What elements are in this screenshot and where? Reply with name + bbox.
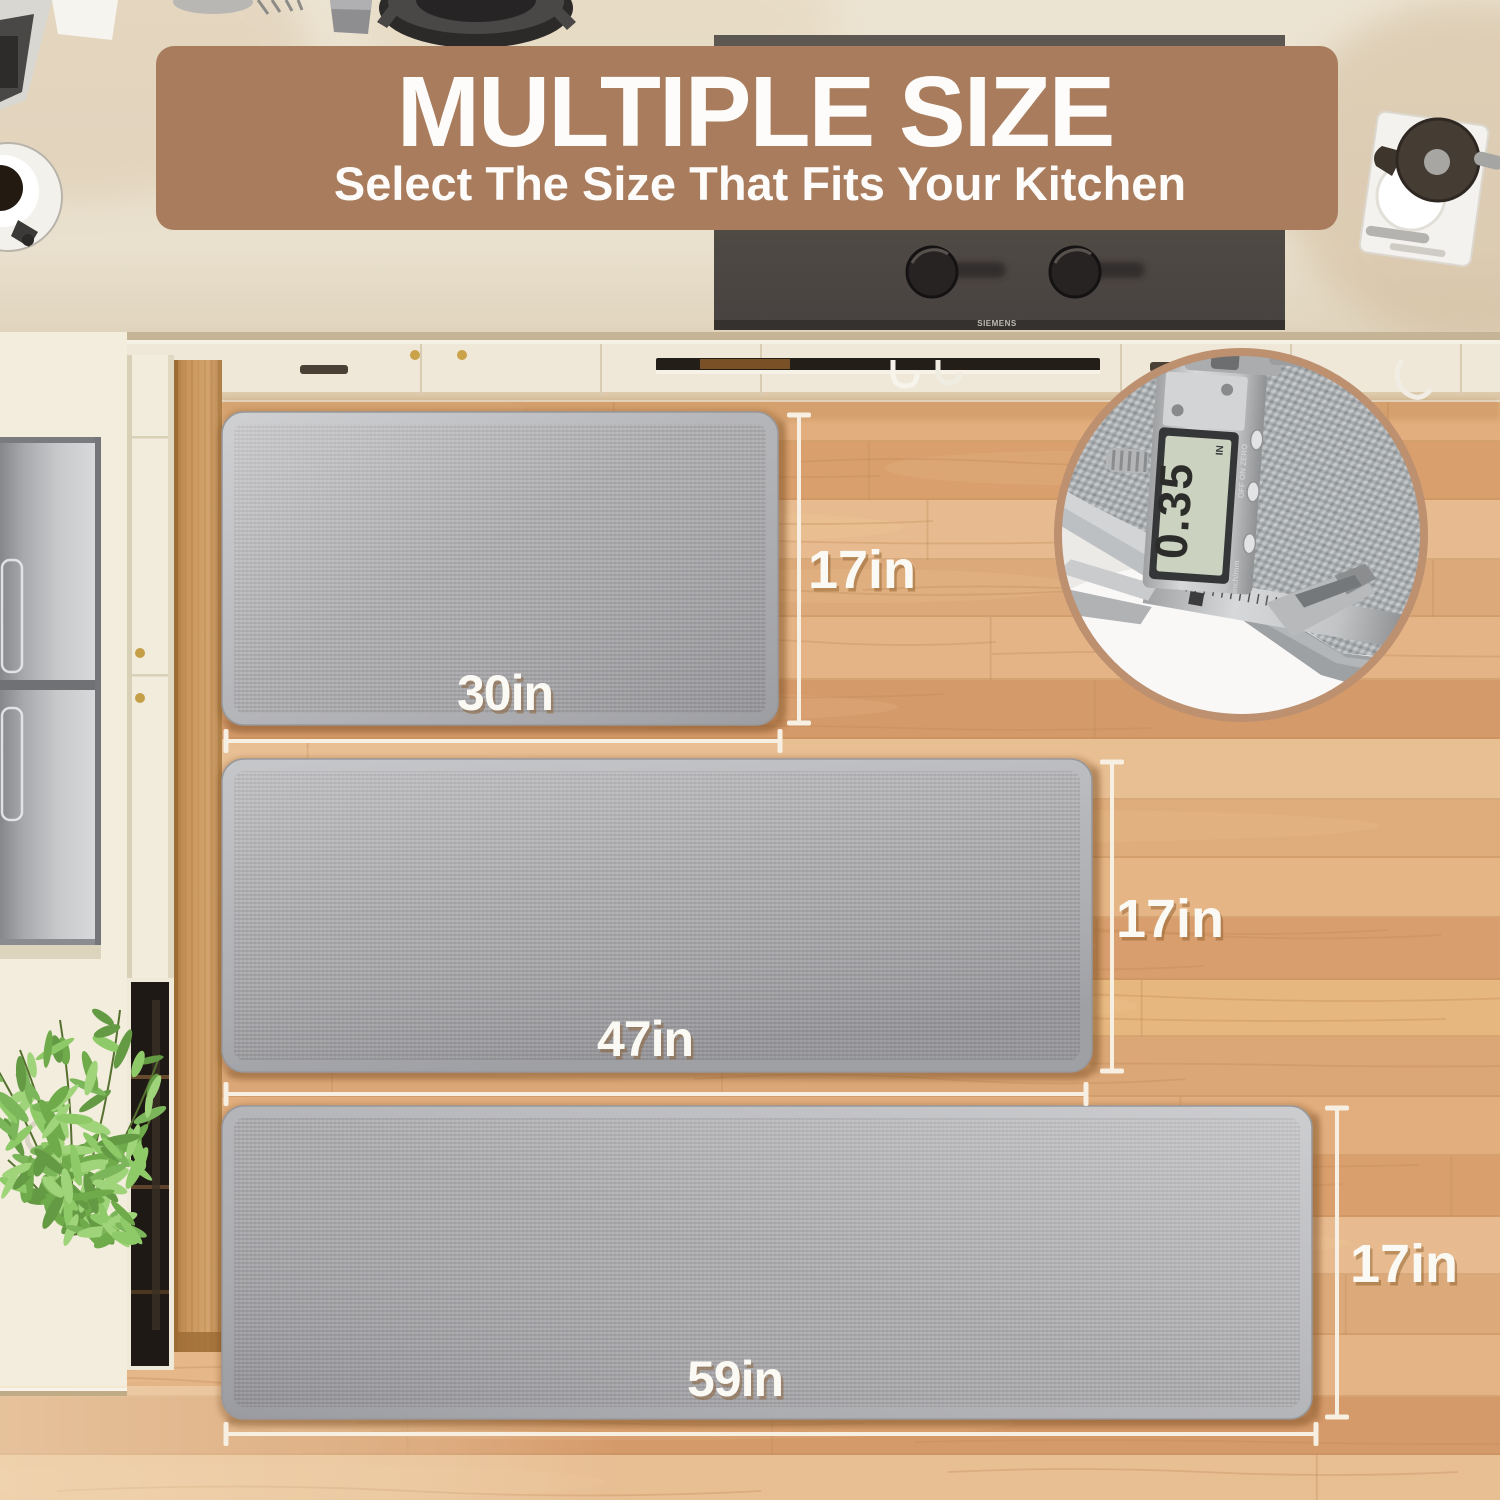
svg-text:Select The Size That Fits Your: Select The Size That Fits Your Kitchen	[334, 157, 1186, 210]
svg-text:17in: 17in	[808, 540, 916, 600]
svg-text:47in: 47in	[597, 1011, 693, 1067]
svg-text:SIEMENS: SIEMENS	[977, 319, 1017, 328]
svg-text:IN: IN	[1215, 445, 1227, 456]
svg-text:30in: 30in	[457, 665, 553, 721]
svg-text:17in: 17in	[1350, 1234, 1458, 1294]
svg-text:MULTIPLE SIZE: MULTIPLE SIZE	[397, 56, 1114, 168]
svg-text:0.35: 0.35	[1144, 460, 1203, 561]
svg-text:59in: 59in	[687, 1351, 783, 1407]
svg-text:17in: 17in	[1116, 889, 1224, 949]
